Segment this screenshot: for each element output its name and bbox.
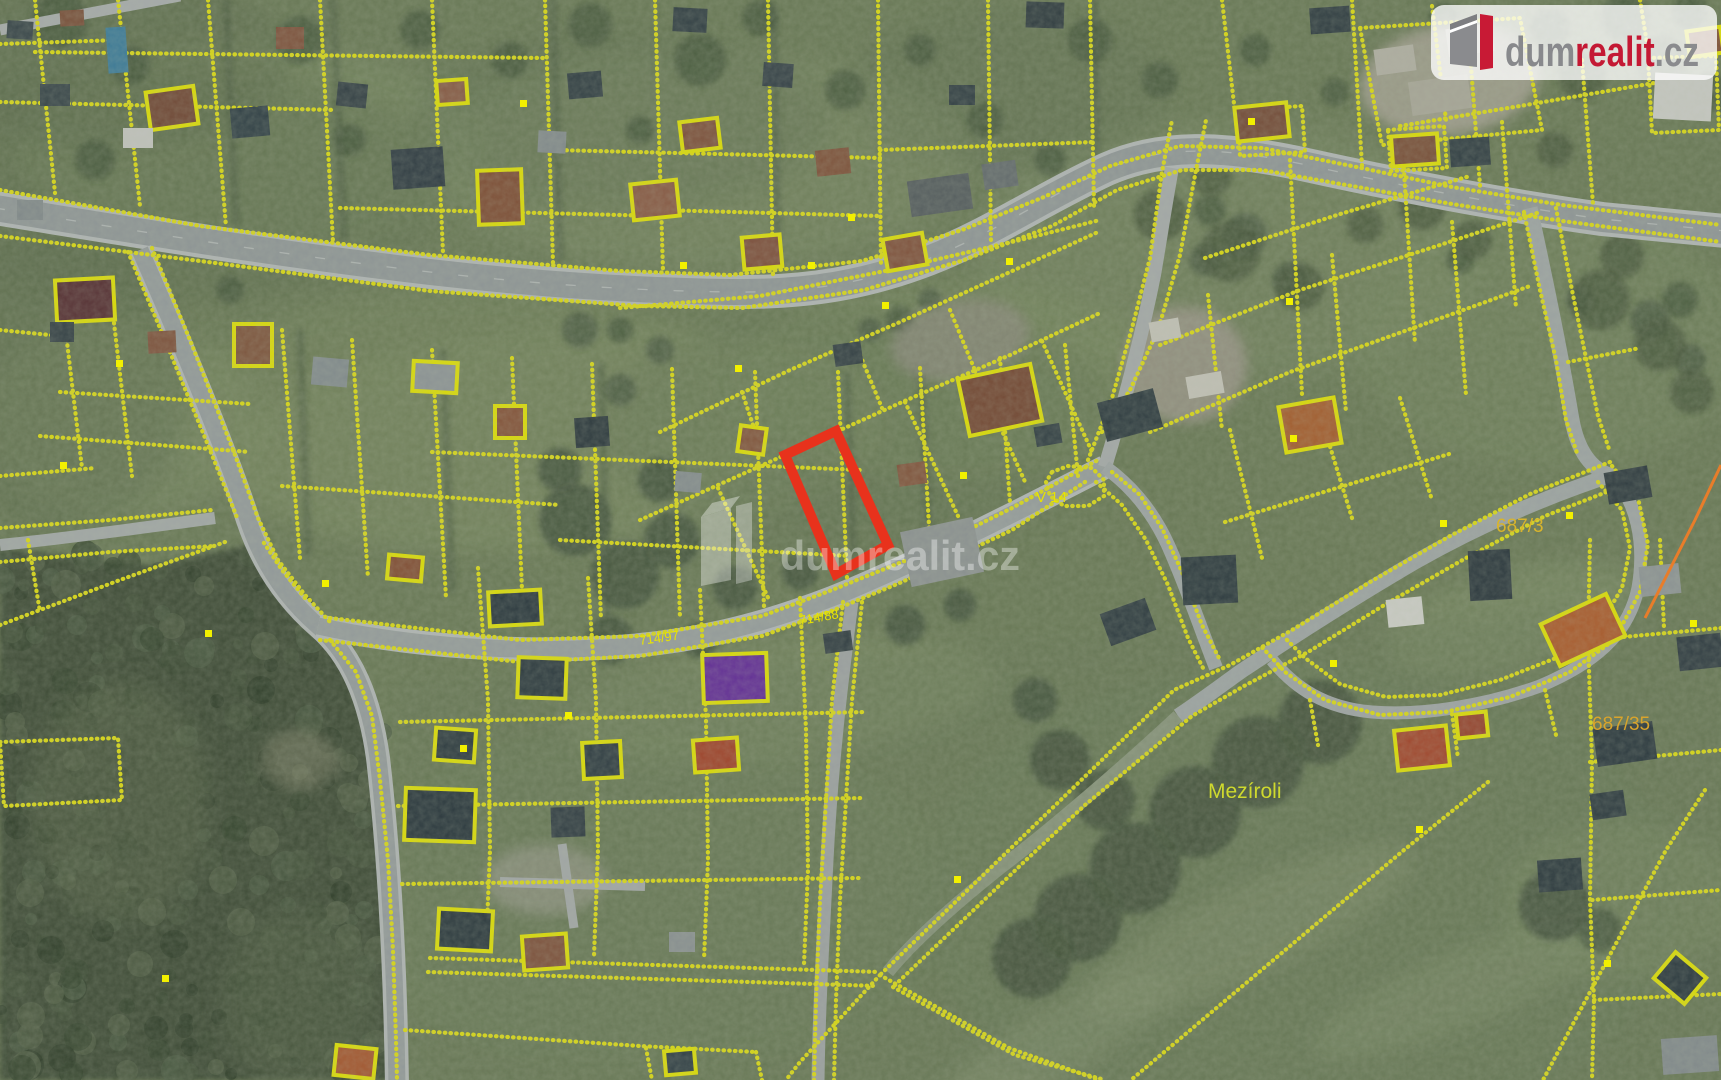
svg-text:687/3: 687/3 xyxy=(1496,516,1544,537)
svg-text:dumrealit.cz: dumrealit.cz xyxy=(1505,28,1699,75)
svg-text:dumrealit.cz: dumrealit.cz xyxy=(780,532,1020,579)
svg-text:687/35: 687/35 xyxy=(1592,714,1650,735)
svg-text:V 14: V 14 xyxy=(1036,489,1067,506)
svg-text:Mezíroli: Mezíroli xyxy=(1208,780,1282,803)
